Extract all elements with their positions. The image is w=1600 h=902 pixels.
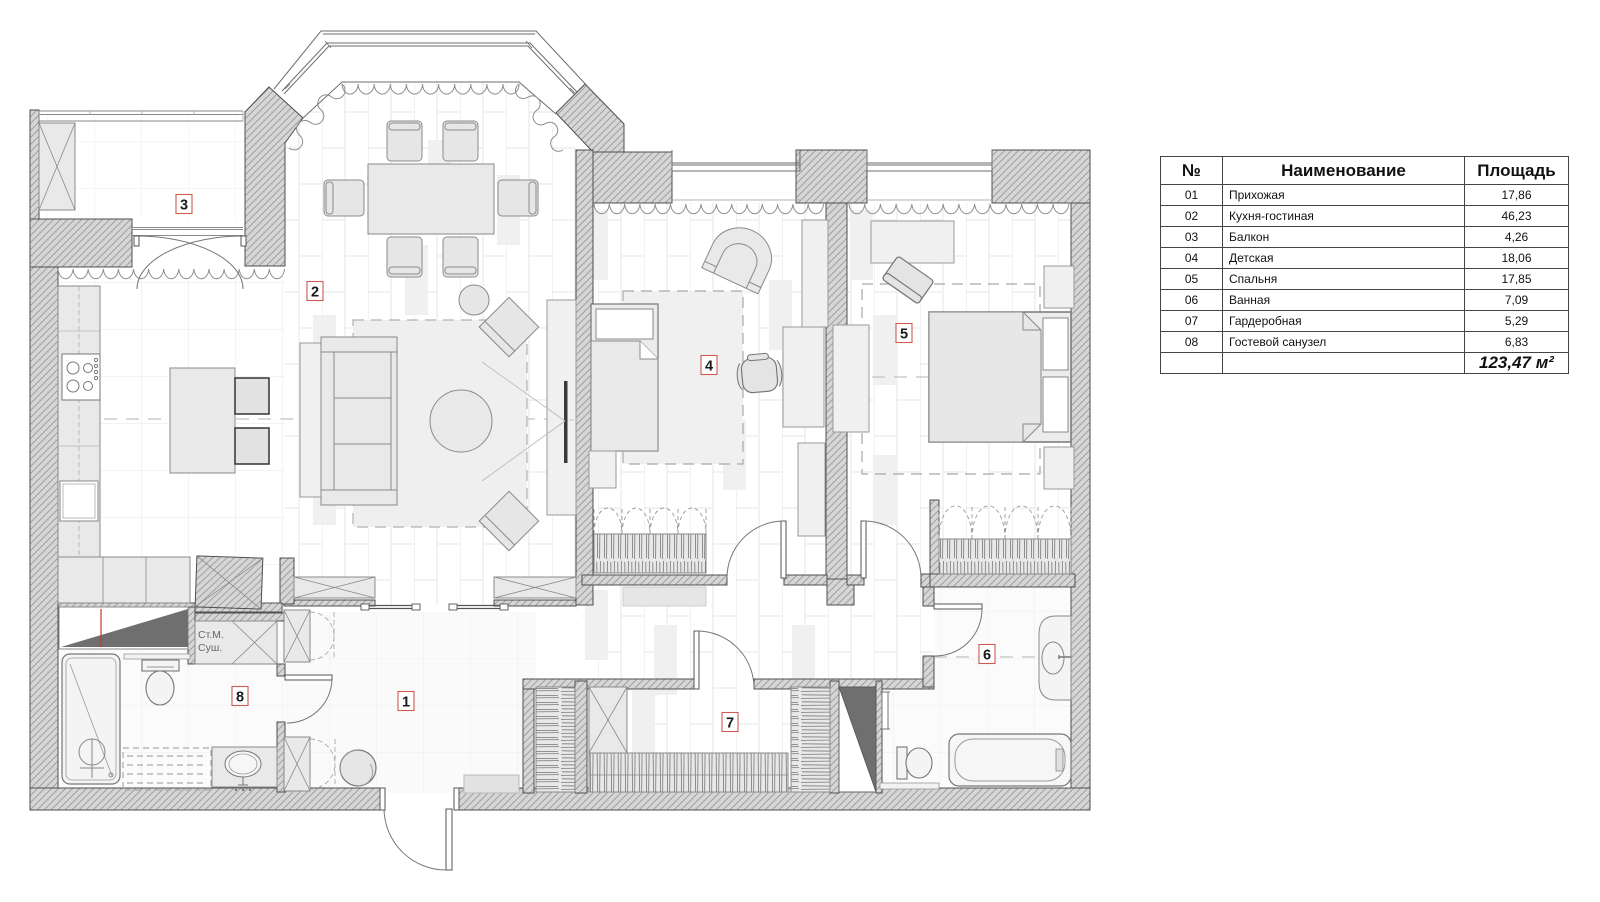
svg-text:7: 7 [726, 716, 734, 732]
svg-text:2: 2 [311, 285, 319, 301]
svg-text:Ст.М.: Ст.М. [198, 629, 224, 641]
svg-text:Суш.: Суш. [198, 642, 222, 654]
svg-text:1: 1 [402, 695, 410, 711]
svg-text:5: 5 [900, 327, 908, 343]
svg-text:3: 3 [180, 198, 188, 214]
svg-text:8: 8 [236, 690, 244, 706]
svg-text:4: 4 [705, 359, 713, 375]
svg-text:6: 6 [983, 648, 991, 664]
